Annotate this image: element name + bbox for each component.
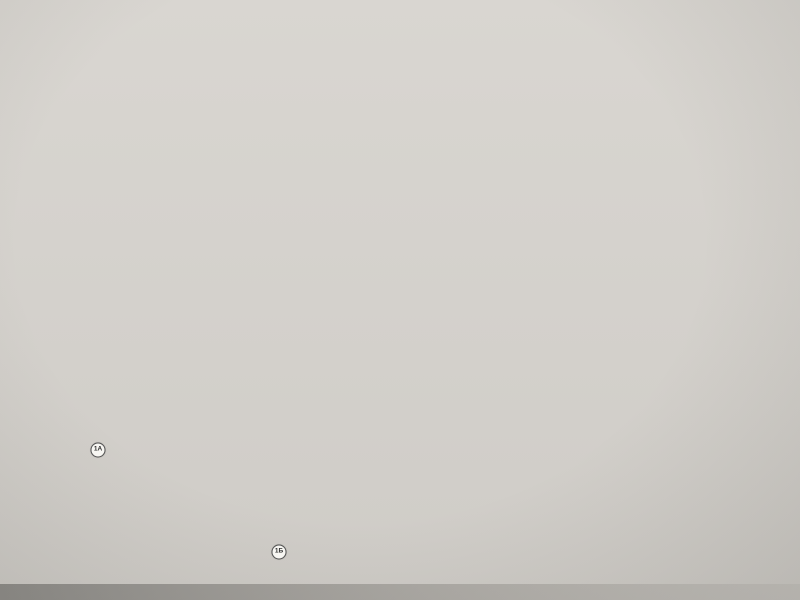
legend-item-label: Кратерный сад	[523, 464, 571, 471]
information-board-photo: Ивовая роща Приусадебный парк E	[0, 0, 800, 600]
map-marker-11: 11	[217, 381, 228, 392]
map-photo-thumbnail	[129, 433, 163, 479]
map-marker-12: 12	[231, 291, 242, 302]
map-marker-10: 10	[223, 357, 234, 368]
legend-item-label: Лаборатория «Биоэнергетика»	[523, 237, 622, 244]
legend-item-label: Навесной мост	[523, 520, 571, 527]
map-marker-16: 16	[306, 307, 317, 318]
legend-item-11: 11Лаборатория «Биоэнергетика»	[508, 237, 708, 246]
map-marker-40: 40	[322, 377, 333, 388]
legend-item-15: 15Трансформаторная подстанция	[508, 272, 708, 281]
legend-item-label: Минигидростанция	[523, 351, 584, 358]
map-marker-37: 37	[228, 407, 239, 418]
legend-item-label: Мостик	[523, 360, 546, 367]
legend-item-23: 23Очистное сооружение	[508, 342, 708, 351]
legend-line-label: Туристические тропы	[556, 558, 633, 567]
map-marker-38: 38	[262, 345, 273, 356]
building-cluster	[294, 324, 380, 394]
legend-item-label: Каплица (исторические развалины)	[523, 378, 637, 385]
legend-item-5: 5Экодом с использованием гибридной энерг…	[508, 184, 708, 193]
legend-item-label: Очистное сооружение	[523, 342, 594, 349]
subtitle-line-2: «Республиканский институт	[438, 87, 716, 101]
compass-north: N	[86, 514, 99, 529]
legend-item-16: 16Учебный корпус	[508, 281, 708, 290]
legend-item-label: Город мастеров	[523, 472, 574, 479]
map-marker-15: 15	[200, 290, 211, 301]
legend-item-label: Банный комплекс	[523, 334, 579, 341]
legend-item-label: Ветрогенератор	[523, 166, 574, 173]
map-marker-29: 29	[88, 425, 99, 436]
legend-item-label: Ангар	[523, 202, 541, 209]
legend-item-1Б: 1БВъезд в историко-культурную зону	[508, 149, 708, 158]
legend-item-22: 22Банный комплекс	[508, 334, 708, 343]
map-photo-thumbnail	[213, 454, 253, 486]
map-marker-13: 13	[263, 376, 274, 387]
legend-item-label: Сады	[523, 488, 541, 495]
map-marker-14: 14	[241, 363, 252, 374]
legend-item-label: Котельная на биотопливе	[523, 228, 605, 235]
legend-item-label: Спортивная площадка	[523, 440, 595, 447]
compass-south: S	[179, 529, 188, 544]
photo-bottom-edge	[0, 584, 800, 600]
legend-item-label: Пост охраны	[523, 400, 564, 407]
title-line-2: «ЭКОТЕХНОПАРК – ВОЛМА»	[438, 43, 716, 64]
legend-item-label: Банный комплекс	[523, 536, 579, 543]
legend-item-label: Гараж для сельскохозяйственной техники	[523, 210, 657, 217]
road-line-swatch	[512, 574, 548, 579]
map-marker-9: 9	[209, 407, 220, 418]
legend-item-8: 8Гараж для сельскохозяйственной техники	[508, 210, 708, 219]
legend-item-4: 4Водонапорная башня	[508, 175, 708, 184]
legend-item-26: 26Закладной исторический камень	[508, 369, 708, 378]
planned-section-label: Планируемые объекты	[686, 412, 695, 542]
legend-item-label: Рыбацкая беседка	[523, 512, 583, 519]
legend-item-label: Презентационный павильон	[523, 408, 613, 415]
map-marker-24: 24	[382, 333, 393, 344]
map-marker-35: 35	[243, 317, 254, 328]
legend-item-label: Сады	[523, 193, 541, 200]
legend-line-item: Транспортная инфраструктура	[512, 572, 708, 581]
legend-item-6: 6Сады	[508, 193, 708, 202]
map-marker-42: 42	[374, 308, 385, 319]
legend-item-13: 13Фермерское хозяйство	[508, 254, 708, 263]
subtitle-line-3: профессионального образования»	[438, 101, 716, 115]
map-marker-25: 25	[312, 197, 323, 208]
legend-item-label: Тепличное хозяйство с учебными лаборатор…	[523, 298, 682, 305]
legend-item-label: Водонапорная башня	[523, 175, 592, 182]
legend-item-label: Артезианская скважина	[523, 219, 599, 226]
legend-item-25: 25Мостик	[508, 360, 708, 369]
legend-item-number: 27	[508, 378, 518, 388]
pink-building-bridge	[204, 201, 227, 216]
wetland-texture	[260, 50, 365, 200]
legend-item-label: Полоса препятствий	[523, 431, 589, 438]
legend-item-2: 2Беседка	[508, 158, 708, 167]
legend-item-21: 21Ресторанный комплекс	[508, 325, 708, 334]
legend-line-item: Туристические тропы	[512, 558, 708, 567]
existing-section-label: Существующие объекты	[691, 168, 700, 328]
map-marker-18: 18	[330, 321, 341, 332]
map-marker-7: 7	[188, 389, 199, 400]
map-marker-19: 19	[435, 363, 446, 374]
board-title: РЕСУРСНЫЙ ЦЕНТР «ЭКОТЕХНОПАРК – ВОЛМА» Ф…	[438, 22, 716, 115]
map-photo-thumbnail	[461, 348, 491, 396]
map-marker-5: 5	[163, 385, 174, 396]
volma-sprout-icon	[14, 27, 48, 61]
map-marker-32: 32	[120, 410, 131, 421]
volma-logo: эко volma ЭКОТЕХНОПАРК	[22, 12, 134, 76]
map-marker-36: 36	[292, 397, 303, 408]
legend-existing-list: 1АВъезд в «ЭкоТехноПарк – Волма»1БВъезд …	[508, 140, 708, 386]
trail-line-swatch	[512, 561, 548, 565]
manor-building	[223, 255, 239, 265]
map-marker-43: 43	[357, 282, 368, 293]
legend-item-label: Усадьба Ваньковичей	[523, 316, 593, 323]
legend-item-label: Детская площадка	[523, 448, 583, 455]
legend-line-label: Транспортная инфраструктура	[556, 572, 668, 581]
map-photo-thumbnail	[231, 494, 267, 522]
map-marker-22: 22	[366, 258, 377, 269]
willow-grove-label: Ивовая роща	[245, 230, 255, 315]
park-map: Ивовая роща Приусадебный парк E	[5, 50, 505, 588]
legend-item-19: 19Объекты частного сектора	[508, 307, 708, 316]
map-marker-27: 27	[347, 195, 358, 206]
legend-item-24: 24Минигидростанция	[508, 351, 708, 360]
legend-item-label: Закладной исторический камень	[523, 369, 628, 376]
ripo-wordmark: РИПО	[130, 26, 229, 57]
title-line-1: РЕСУРСНЫЙ ЦЕНТР	[438, 22, 716, 43]
legend-item-label: Учебно-лабораторный корпус	[523, 496, 618, 503]
legend-item-label: Гостевые домики	[523, 528, 578, 535]
legend-item-label: Въезд в «ЭкоТехноПарк – Волма»	[523, 140, 632, 147]
legend-item-18: 18Тепличное хозяйство с учебными лаборат…	[508, 298, 708, 307]
planned-section-bracket	[675, 404, 684, 548]
compass-rose: E S W N	[73, 478, 189, 588]
legend-item-label: Теплицы	[523, 456, 551, 463]
map-marker-31: 31	[137, 397, 148, 408]
volma-eco-text: эко	[52, 39, 58, 48]
existing-section-bracket	[680, 156, 689, 336]
legend-item-label: Въезд в историко-культурную зону	[523, 149, 634, 156]
legend-item-label: Летний амфитеатр	[523, 480, 583, 487]
legend-item-label: Трансформаторная подстанция	[523, 272, 625, 279]
map-marker-20: 20	[222, 243, 233, 254]
map-marker-2: 2	[96, 393, 107, 404]
legend-item-label: Хозяйственный блок	[523, 263, 589, 270]
map-marker-23: 23	[396, 345, 407, 356]
legend-item-label: Фермерское хозяйство	[523, 254, 596, 261]
legend-item-1А: 1АВъезд в «ЭкоТехноПарк – Волма»	[508, 140, 708, 149]
map-marker-17: 17	[308, 326, 319, 337]
map-marker-41: 41	[253, 200, 264, 211]
legend-item-label: Беседка	[523, 158, 550, 165]
map-marker-4: 4	[153, 422, 164, 433]
legend-item-3: 3Ветрогенератор	[508, 166, 708, 175]
legend-item-label: Гостиница с использованием ВИЭ	[523, 290, 633, 297]
legend-item-28: 28Парковка	[508, 392, 708, 400]
legend-item-27: 27Каплица (исторические развалины)	[508, 378, 708, 387]
compass-east: E	[126, 478, 136, 489]
map-marker-45: 45	[420, 279, 431, 290]
map-marker-30: 30	[113, 369, 124, 380]
map-marker-34: 34	[208, 328, 219, 339]
map-marker-44: 44	[403, 257, 414, 268]
legend-item-label: Мост	[523, 504, 539, 511]
legend-item-label: Станция зарядки электромобилей.Парковка …	[523, 416, 648, 431]
legend-item-label: Объекты частного сектора	[523, 307, 608, 314]
fleur-de-lis-icon	[75, 531, 88, 541]
map-marker-21: 21	[352, 245, 363, 256]
map-marker-1Б: 1Б	[272, 545, 287, 560]
legend-item-label: Дизельная станция	[523, 246, 585, 253]
legend-item-number: 31	[508, 416, 518, 426]
ripo-logo: РИПО	[140, 15, 218, 67]
map-marker-8: 8	[150, 335, 161, 346]
map-marker-3: 3	[87, 384, 98, 395]
legend-item-10: 10Котельная на биотопливе	[508, 228, 708, 237]
map-marker-6: 6	[171, 369, 182, 380]
map-photo-thumbnail	[463, 444, 495, 472]
map-photo-thumbnail	[343, 210, 385, 240]
map-marker-26: 26	[286, 376, 297, 387]
subtitle-line-1: Филиал учреждения образования	[438, 72, 716, 86]
map-photo-thumbnail	[235, 388, 265, 408]
map-marker-28: 28	[118, 383, 129, 394]
legend-item-number: 45	[508, 536, 518, 546]
legend-item-20: 20Усадьба Ваньковичей	[508, 316, 708, 325]
legend-line-types: Туристические тропыТранспортная инфрастр…	[512, 558, 708, 581]
map-marker-33: 33	[175, 355, 186, 366]
legend-item-14: 14Хозяйственный блок	[508, 263, 708, 272]
legend-item-9: 9Артезианская скважина	[508, 219, 708, 228]
map-marker-1А: 1А	[91, 443, 106, 458]
legend-item-label: Парковка	[523, 392, 553, 399]
legend-item-label: Экодом с использованием гибридной энерги…	[523, 184, 670, 191]
map-marker-39: 39	[182, 117, 193, 128]
legend-item-label: Учебный корпус	[523, 281, 575, 288]
legend-item-label: Ресторанный комплекс	[523, 325, 597, 332]
